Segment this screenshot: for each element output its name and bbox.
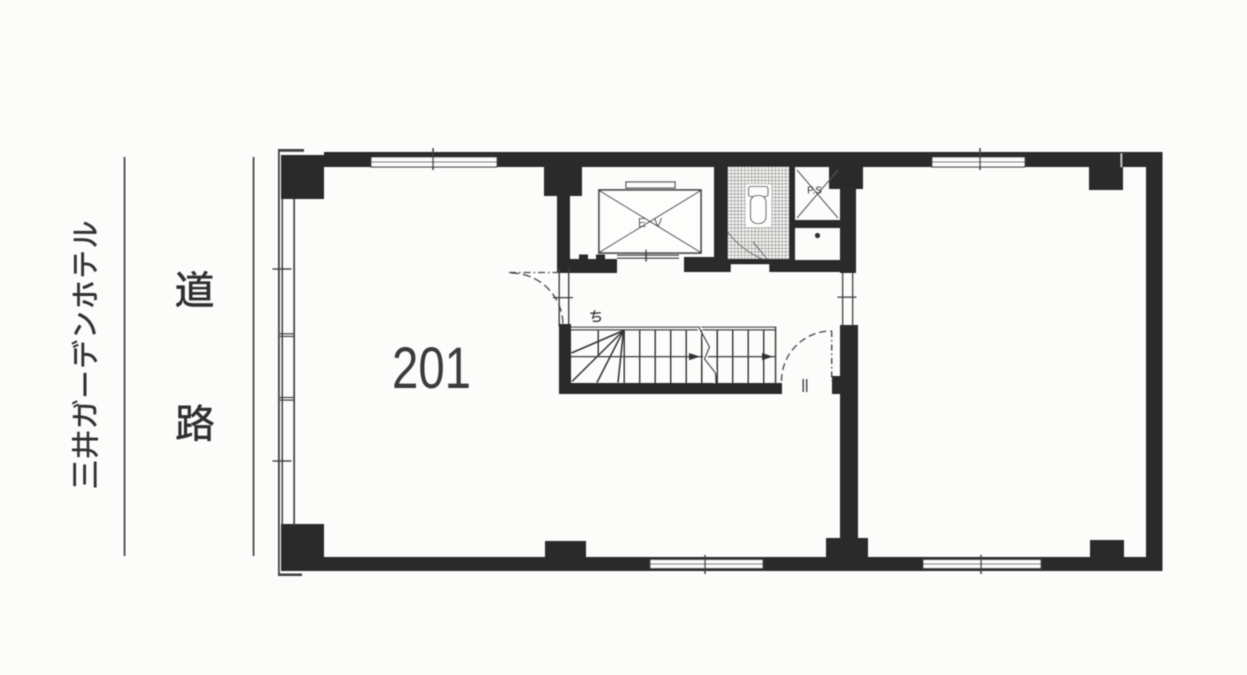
svg-text:E: E [638, 216, 646, 230]
svg-text:P.S: P.S [807, 186, 822, 197]
svg-text:201: 201 [392, 337, 471, 402]
svg-text:V: V [654, 216, 663, 230]
